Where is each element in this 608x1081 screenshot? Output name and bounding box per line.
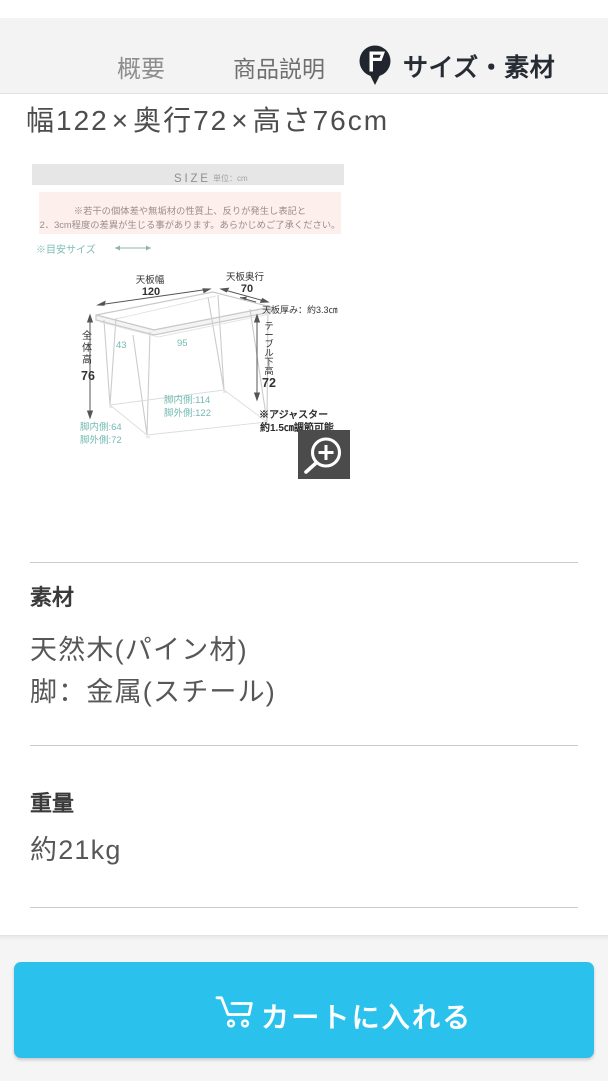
svg-text:単位：cm: 単位：cm: [213, 173, 248, 183]
svg-text:95: 95: [177, 338, 188, 349]
svg-text:脚外側:122: 脚外側:122: [164, 407, 211, 419]
svg-text:SIZE: SIZE: [174, 173, 211, 185]
svg-text:脚内側:64: 脚内側:64: [80, 421, 122, 433]
svg-text:70: 70: [241, 283, 253, 295]
svg-text:※若干の個体差や無垢材の性質上、反りが発生し表記と: ※若干の個体差や無垢材の性質上、反りが発生し表記と: [74, 205, 306, 216]
svg-text:全: 全: [82, 329, 92, 342]
svg-text:高: 高: [264, 365, 273, 376]
svg-text:天板厚み：約3.3㎝: 天板厚み：約3.3㎝: [262, 304, 338, 315]
svg-text:高: 高: [82, 353, 92, 366]
svg-text:2．3cm程度の差異が生じる事があります。あらかじめご了承く: 2．3cm程度の差異が生じる事があります。あらかじめご了承ください。: [40, 219, 341, 230]
svg-text:※アジャスター: ※アジャスター: [259, 409, 328, 421]
svg-text:体: 体: [82, 342, 92, 354]
svg-text:43: 43: [116, 340, 127, 351]
svg-text:脚内側:114: 脚内側:114: [164, 394, 210, 406]
svg-text:天板幅: 天板幅: [136, 274, 165, 286]
svg-text:120: 120: [142, 286, 160, 298]
svg-text:72: 72: [262, 376, 276, 390]
svg-text:76: 76: [81, 369, 95, 383]
svg-text:※目安サイズ: ※目安サイズ: [36, 243, 96, 256]
svg-text:天板奥行: 天板奥行: [226, 271, 265, 283]
svg-text:脚外側:72: 脚外側:72: [80, 434, 122, 446]
